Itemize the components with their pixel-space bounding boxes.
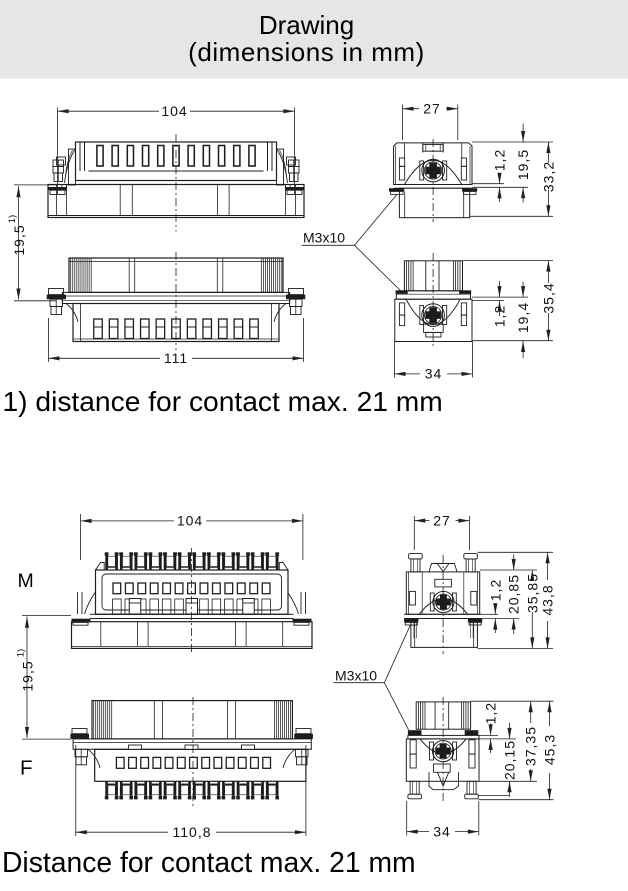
svg-text:20,85: 20,85 — [506, 574, 522, 614]
svg-text:F: F — [20, 756, 33, 779]
svg-text:35,4: 35,4 — [540, 282, 556, 313]
svg-text:1,2: 1,2 — [483, 702, 499, 724]
svg-text:1): 1) — [7, 215, 18, 223]
svg-text:27: 27 — [433, 512, 451, 528]
svg-text:35,85: 35,85 — [524, 573, 540, 613]
svg-text:Distance for contact max. 21 m: Distance for contact max. 21 mm — [2, 846, 416, 878]
svg-text:Drawing: Drawing — [259, 10, 354, 40]
svg-text:1,2: 1,2 — [492, 305, 508, 327]
svg-text:19,5: 19,5 — [20, 660, 36, 691]
svg-text:19,4: 19,4 — [515, 302, 531, 333]
svg-text:45,3: 45,3 — [542, 734, 558, 765]
svg-text:104: 104 — [161, 103, 187, 119]
svg-text:M: M — [18, 570, 34, 592]
svg-text:(dimensions in mm): (dimensions in mm) — [188, 37, 425, 67]
svg-text:27: 27 — [423, 101, 441, 117]
svg-text:110,8: 110,8 — [173, 824, 212, 840]
svg-text:111: 111 — [164, 350, 188, 366]
svg-text:1) distance for contact max. 2: 1) distance for contact max. 21 mm — [3, 385, 443, 417]
svg-text:20,15: 20,15 — [502, 740, 518, 780]
svg-text:43,8: 43,8 — [540, 584, 556, 615]
svg-text:1,2: 1,2 — [492, 149, 508, 171]
svg-text:34: 34 — [433, 823, 451, 839]
svg-text:19,5: 19,5 — [515, 149, 531, 180]
svg-text:104: 104 — [177, 513, 203, 529]
svg-text:1): 1) — [16, 649, 27, 657]
svg-text:34: 34 — [425, 366, 443, 382]
svg-text:M3x10: M3x10 — [303, 229, 345, 245]
svg-text:33,2: 33,2 — [540, 161, 556, 192]
svg-text:19,5: 19,5 — [11, 224, 27, 255]
svg-text:37,35: 37,35 — [523, 726, 539, 766]
svg-text:M3x10: M3x10 — [335, 668, 377, 684]
svg-text:1,2: 1,2 — [487, 579, 503, 601]
